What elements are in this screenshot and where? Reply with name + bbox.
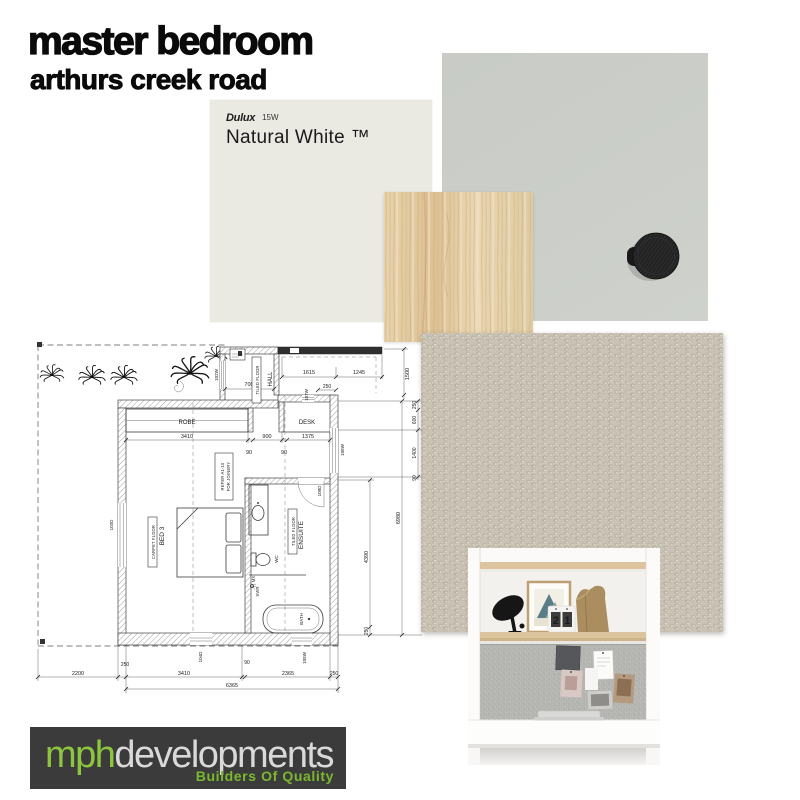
dim-250-bottom-a: 250 (121, 662, 130, 668)
black-knob (623, 228, 685, 288)
paint-brand: Dulux (226, 112, 255, 124)
dim-90-a: 90 (246, 450, 252, 456)
desk-photo: 2 1 (468, 548, 660, 765)
page-subtitle: arthurs creek road (30, 66, 267, 94)
logo: mphdevelopments Builders Of Quality (30, 727, 346, 789)
under-desk-shadow (480, 748, 646, 765)
label-swr: SWR (255, 586, 260, 596)
dim-1500: 1500 (405, 368, 411, 380)
label-102w: 102W (214, 368, 219, 381)
pinned-sandpaper (556, 646, 581, 671)
top-shelf (480, 562, 646, 572)
label-robe: ROBE (178, 420, 195, 426)
label-hall: HALL (268, 371, 274, 387)
dim-600-right: 600 (412, 416, 418, 425)
dim-90-b: 90 (281, 450, 287, 456)
dim-1245: 1245 (353, 370, 365, 376)
dim-3410-bottom: 3410 (178, 671, 190, 677)
timber-grain-graphic (384, 192, 533, 342)
label-ensuite-floor: TILED FLOOR (291, 517, 296, 546)
dim-900: 900 (262, 434, 271, 440)
logo-tagline: Builders Of Quality (196, 768, 334, 784)
label-bed3-floor: CARPET FLOOR (151, 525, 156, 559)
dim-90-right: 90 (412, 475, 418, 481)
second-shelf (480, 632, 646, 644)
desk-photo-graphic: 2 1 (468, 548, 660, 765)
floor-plan-drawing: 1615 1245 250 700 1500 3410 900 1375 90 … (30, 333, 440, 701)
dim-6980: 6980 (396, 512, 402, 524)
paper-bag (576, 586, 609, 632)
paint-brand-row: Dulux 15W (226, 112, 432, 124)
pinboard (480, 644, 646, 720)
dim-1400-right: 1400 (412, 447, 418, 458)
label-103d: 103D (109, 519, 114, 531)
floor-plan: 1615 1245 250 700 1500 3410 900 1375 90 … (30, 333, 440, 701)
label-joinery-1: REFER A1-10 (220, 462, 225, 490)
dim-250-right-b: 250 (364, 627, 370, 636)
calendar-digit-right: 1 (564, 615, 570, 627)
calendar-digit-left: 2 (553, 615, 559, 627)
dim-90-bottom: 90 (244, 660, 250, 666)
dim-250-top: 250 (323, 384, 332, 390)
label-105w: 105W (302, 651, 307, 664)
dim-6365: 6365 (226, 683, 238, 689)
landscape-plants (40, 346, 227, 392)
dim-2365: 2365 (282, 671, 294, 677)
dim-1615: 1615 (303, 370, 315, 376)
laptop (534, 711, 604, 721)
label-hall-floor: TILED FLOOR (255, 365, 260, 394)
logo-mph: mph (45, 734, 114, 776)
dim-1375: 1375 (302, 434, 314, 440)
label-107w: 107W (304, 388, 309, 401)
label-106w: 106W (340, 443, 345, 456)
dim-3410-mid: 3410 (181, 434, 193, 440)
paint-name: Natural White ™ (226, 127, 432, 149)
floor-plan-walls (118, 347, 382, 645)
label-104d: 104D (198, 651, 203, 663)
site-boundary (37, 342, 338, 646)
dim-4390: 4390 (364, 551, 370, 563)
label-desk: DESK (299, 420, 315, 426)
label-108d: 108D (317, 485, 322, 497)
timber-swatch (384, 192, 533, 342)
knob-graphic (623, 228, 685, 288)
label-ensuite: ENSUITE (298, 520, 305, 549)
label-bath: BATH (299, 613, 304, 625)
ensuite-fixtures (249, 485, 323, 633)
label-mx: MX (251, 576, 256, 583)
dim-250-right-a: 250 (412, 401, 418, 410)
label-joinery-2: FOR JOINERY (226, 462, 231, 492)
page-title: master bedroom (28, 22, 313, 61)
bed-symbol (177, 508, 243, 577)
paint-code: 15W (262, 113, 278, 122)
dim-250-bottom-b: 250 (330, 671, 339, 677)
label-bed3: BED 3 (159, 526, 166, 545)
dim-2200: 2200 (72, 671, 84, 677)
label-wc: WC (274, 555, 279, 563)
pinned-note (585, 668, 598, 690)
flip-calendar: 2 1 (548, 606, 575, 632)
